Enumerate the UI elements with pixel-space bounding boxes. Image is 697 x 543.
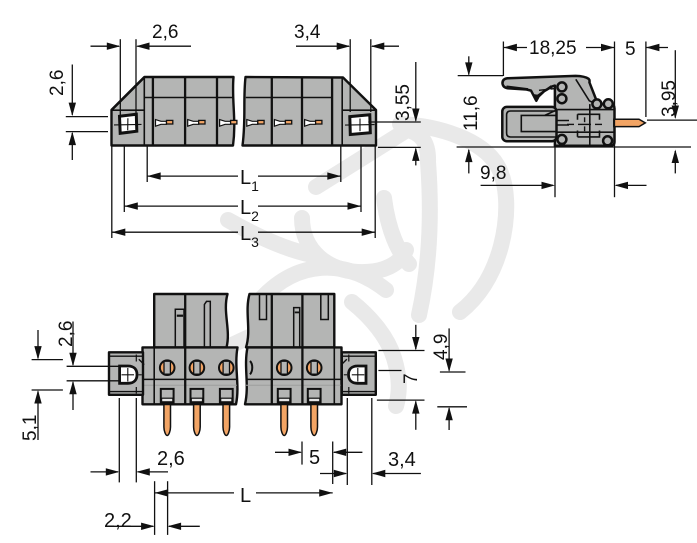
svg-text:2,6: 2,6 [152, 22, 178, 43]
svg-text:7: 7 [401, 373, 422, 384]
svg-text:L: L [240, 485, 251, 507]
svg-text:2,6: 2,6 [56, 321, 77, 347]
svg-text:5: 5 [625, 39, 636, 60]
svg-text:2,6: 2,6 [157, 448, 185, 470]
svg-text:3,4: 3,4 [388, 449, 416, 471]
svg-text:3,55: 3,55 [393, 84, 414, 121]
svg-text:9,8: 9,8 [480, 163, 506, 184]
svg-text:11,6: 11,6 [461, 95, 482, 131]
svg-text:3,4: 3,4 [294, 22, 321, 43]
svg-text:2,2: 2,2 [104, 510, 132, 532]
svg-text:18,25: 18,25 [529, 38, 577, 59]
svg-text:5: 5 [309, 447, 320, 469]
svg-text:2,6: 2,6 [47, 70, 68, 96]
